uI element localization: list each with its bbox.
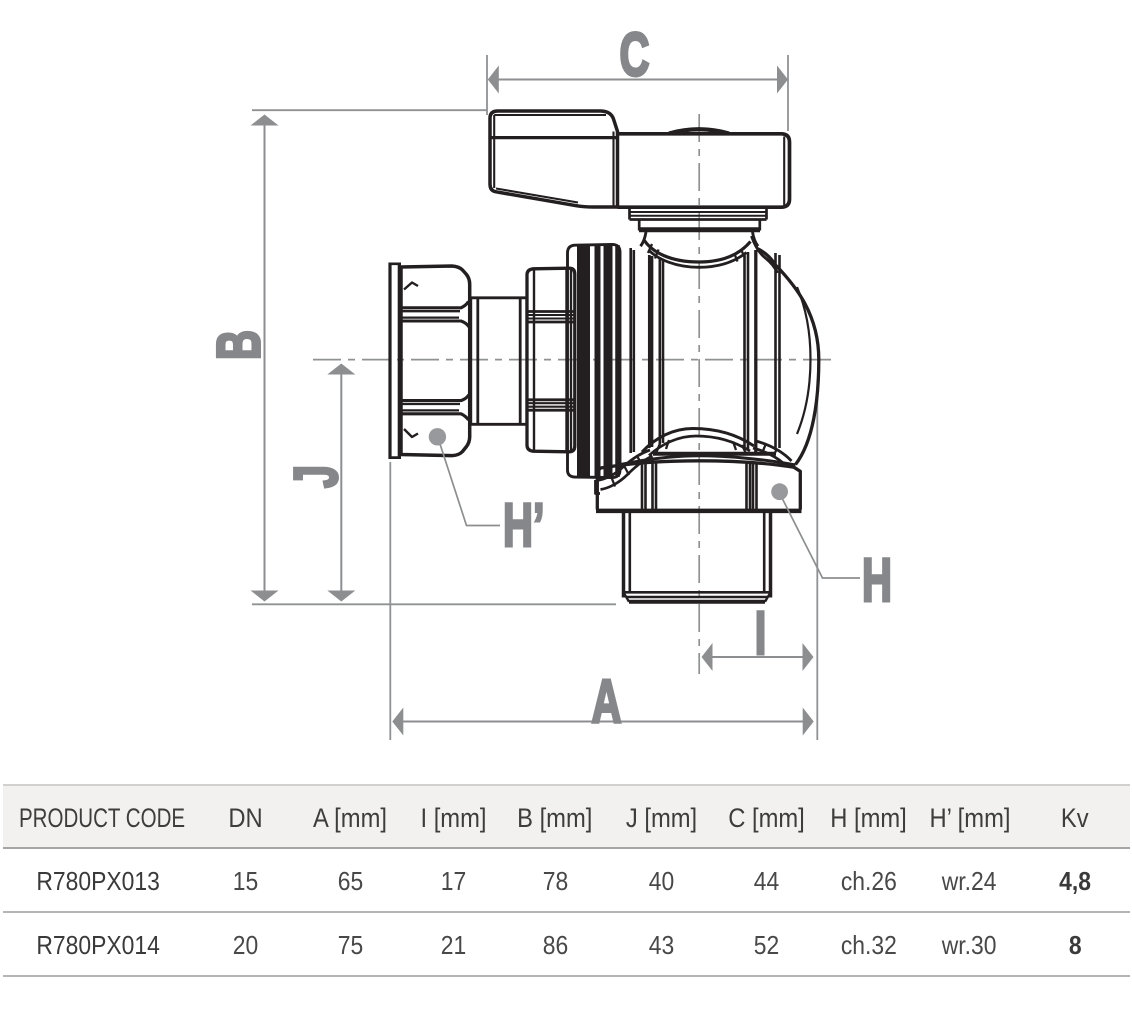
- svg-text:A: A: [592, 669, 622, 737]
- svg-text:J: J: [283, 465, 351, 488]
- svg-text:I: I: [755, 600, 767, 668]
- svg-text:H: H: [862, 547, 892, 615]
- svg-text:B: B: [206, 330, 274, 360]
- svg-text:H’: H’: [503, 492, 544, 560]
- svg-text:C: C: [620, 22, 650, 90]
